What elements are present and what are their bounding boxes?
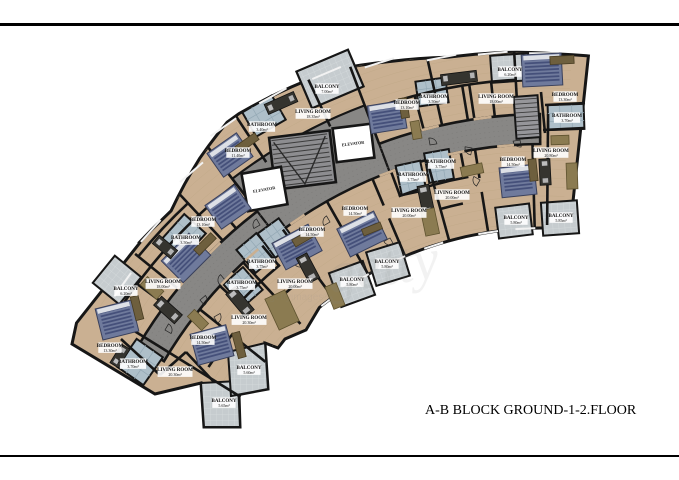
svg-text:3.75m²: 3.75m² [256, 264, 268, 269]
svg-text:6.20m²: 6.20m² [504, 72, 516, 77]
svg-text:5.60m²: 5.60m² [243, 370, 255, 375]
svg-text:3.70m²: 3.70m² [127, 364, 139, 369]
svg-text:5.80m²: 5.80m² [510, 220, 522, 225]
svg-text:20.00m²: 20.00m² [402, 213, 416, 218]
svg-text:5.65m²: 5.65m² [218, 403, 230, 408]
svg-text:3.40m²: 3.40m² [256, 127, 268, 132]
svg-text:20.00m²: 20.00m² [288, 284, 302, 289]
svg-text:3.75m²: 3.75m² [435, 164, 447, 169]
svg-text:20.80m²: 20.80m² [544, 153, 558, 158]
svg-text:13.10m²: 13.10m² [400, 105, 414, 110]
svg-text:20.30m²: 20.30m² [242, 320, 256, 325]
svg-text:gettyimages®: gettyimages® [269, 292, 331, 303]
svg-text:20.00m²: 20.00m² [445, 195, 459, 200]
svg-text:14.50m²: 14.50m² [196, 340, 210, 345]
svg-text:11.40m²: 11.40m² [231, 153, 245, 158]
svg-text:13.30m²: 13.30m² [103, 348, 117, 353]
svg-text:3.50m²: 3.50m² [180, 240, 192, 245]
svg-text:20.30m²: 20.30m² [168, 372, 182, 377]
svg-text:18.35m²: 18.35m² [306, 114, 320, 119]
svg-text:6.20m²: 6.20m² [120, 291, 132, 296]
svg-text:3.70m²: 3.70m² [561, 118, 573, 123]
svg-text:7.00m²: 7.00m² [321, 89, 333, 94]
svg-text:3.75m²: 3.75m² [236, 285, 248, 290]
svg-text:14.50m²: 14.50m² [348, 211, 362, 216]
svg-text:3.50m²: 3.50m² [428, 99, 440, 104]
svg-text:13.30m²: 13.30m² [558, 97, 572, 102]
svg-text:18.00m²: 18.00m² [156, 284, 170, 289]
svg-text:14.50m²: 14.50m² [506, 162, 520, 167]
svg-text:13.10m²: 13.10m² [196, 222, 210, 227]
svg-text:18.00m²: 18.00m² [489, 99, 503, 104]
svg-text:5.85m²: 5.85m² [555, 218, 567, 223]
svg-text:3.75m²: 3.75m² [407, 177, 419, 182]
svg-text:14.50m²: 14.50m² [305, 232, 319, 237]
